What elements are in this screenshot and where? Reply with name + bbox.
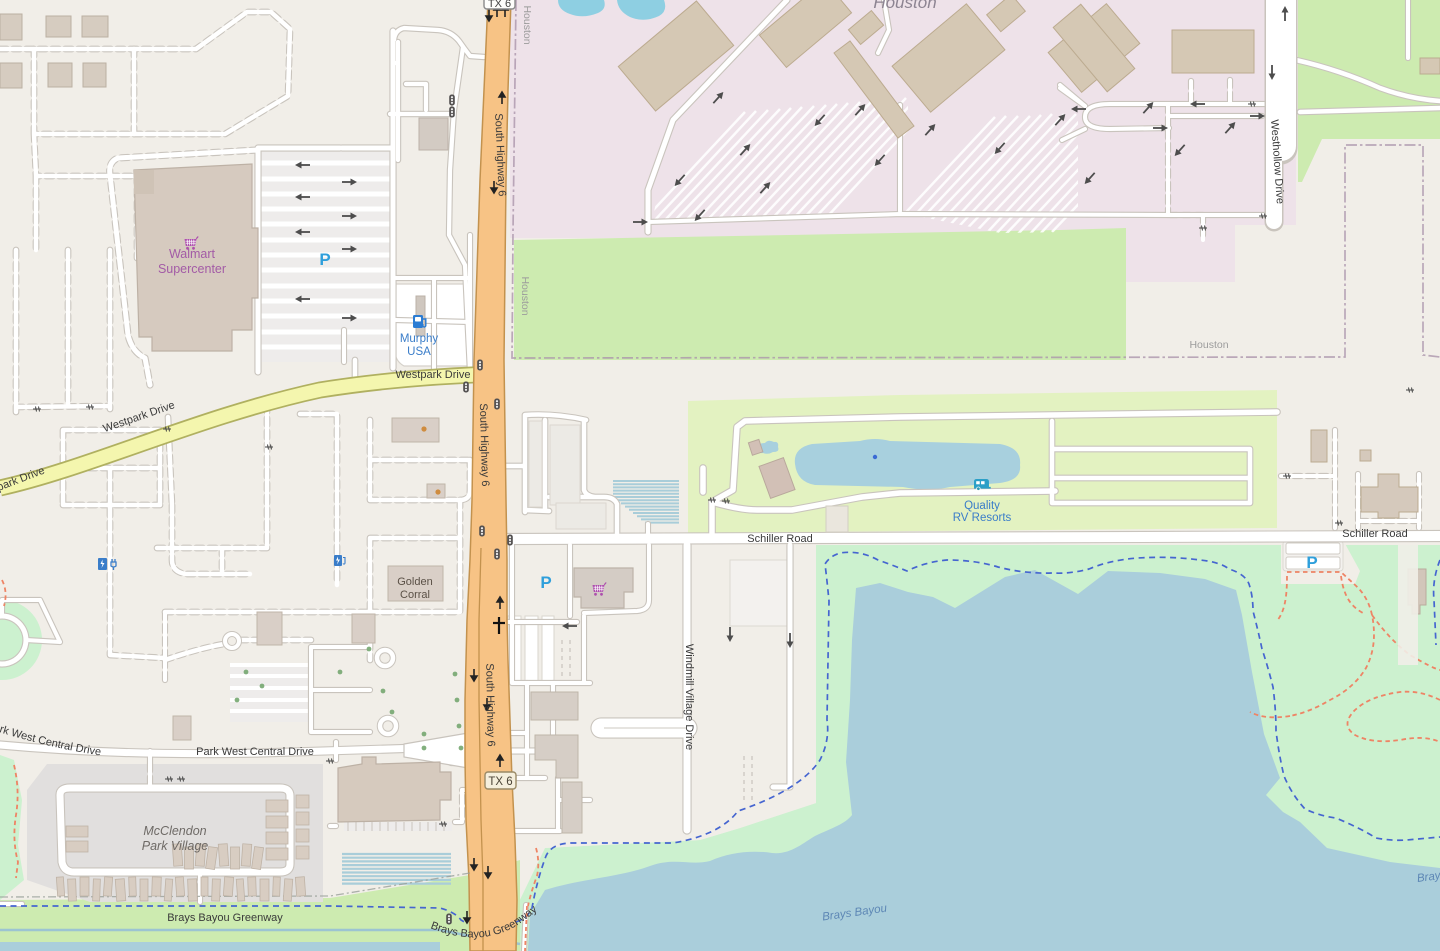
svg-text:Houston: Houston: [519, 276, 531, 315]
svg-text:Quality: Quality: [964, 500, 1000, 512]
svg-text:Houston: Houston: [521, 5, 533, 44]
svg-text:Walmart: Walmart: [169, 247, 216, 261]
svg-text:USA: USA: [407, 346, 431, 358]
svg-text:Houston: Houston: [873, 0, 936, 12]
svg-text:TX 6: TX 6: [488, 776, 512, 788]
svg-text:P: P: [540, 573, 551, 592]
svg-text:TX 6: TX 6: [488, 0, 511, 10]
svg-text:South Highway 6: South Highway 6: [483, 663, 496, 746]
svg-text:Golden: Golden: [397, 576, 432, 588]
svg-text:Houston: Houston: [1189, 339, 1228, 351]
svg-text:South Highway 6: South Highway 6: [477, 403, 491, 486]
svg-text:Park Village: Park Village: [142, 839, 209, 853]
svg-text:P: P: [319, 250, 330, 269]
svg-text:Schiller Road: Schiller Road: [1342, 528, 1407, 540]
svg-text:Windmill Village Drive: Windmill Village Drive: [683, 644, 695, 750]
svg-text:McClendon: McClendon: [143, 824, 206, 838]
svg-text:Westpark Drive: Westpark Drive: [396, 369, 471, 381]
svg-text:Murphy: Murphy: [400, 333, 439, 345]
svg-text:Park West Central Drive: Park West Central Drive: [196, 746, 314, 758]
svg-text:Supercenter: Supercenter: [158, 262, 226, 276]
svg-text:Corral: Corral: [400, 589, 430, 601]
svg-text:Schiller Road: Schiller Road: [747, 533, 812, 545]
svg-text:Brays Bayou Greenway: Brays Bayou Greenway: [167, 912, 283, 924]
svg-text:P: P: [1306, 553, 1317, 572]
svg-text:RV Resorts: RV Resorts: [953, 512, 1012, 524]
